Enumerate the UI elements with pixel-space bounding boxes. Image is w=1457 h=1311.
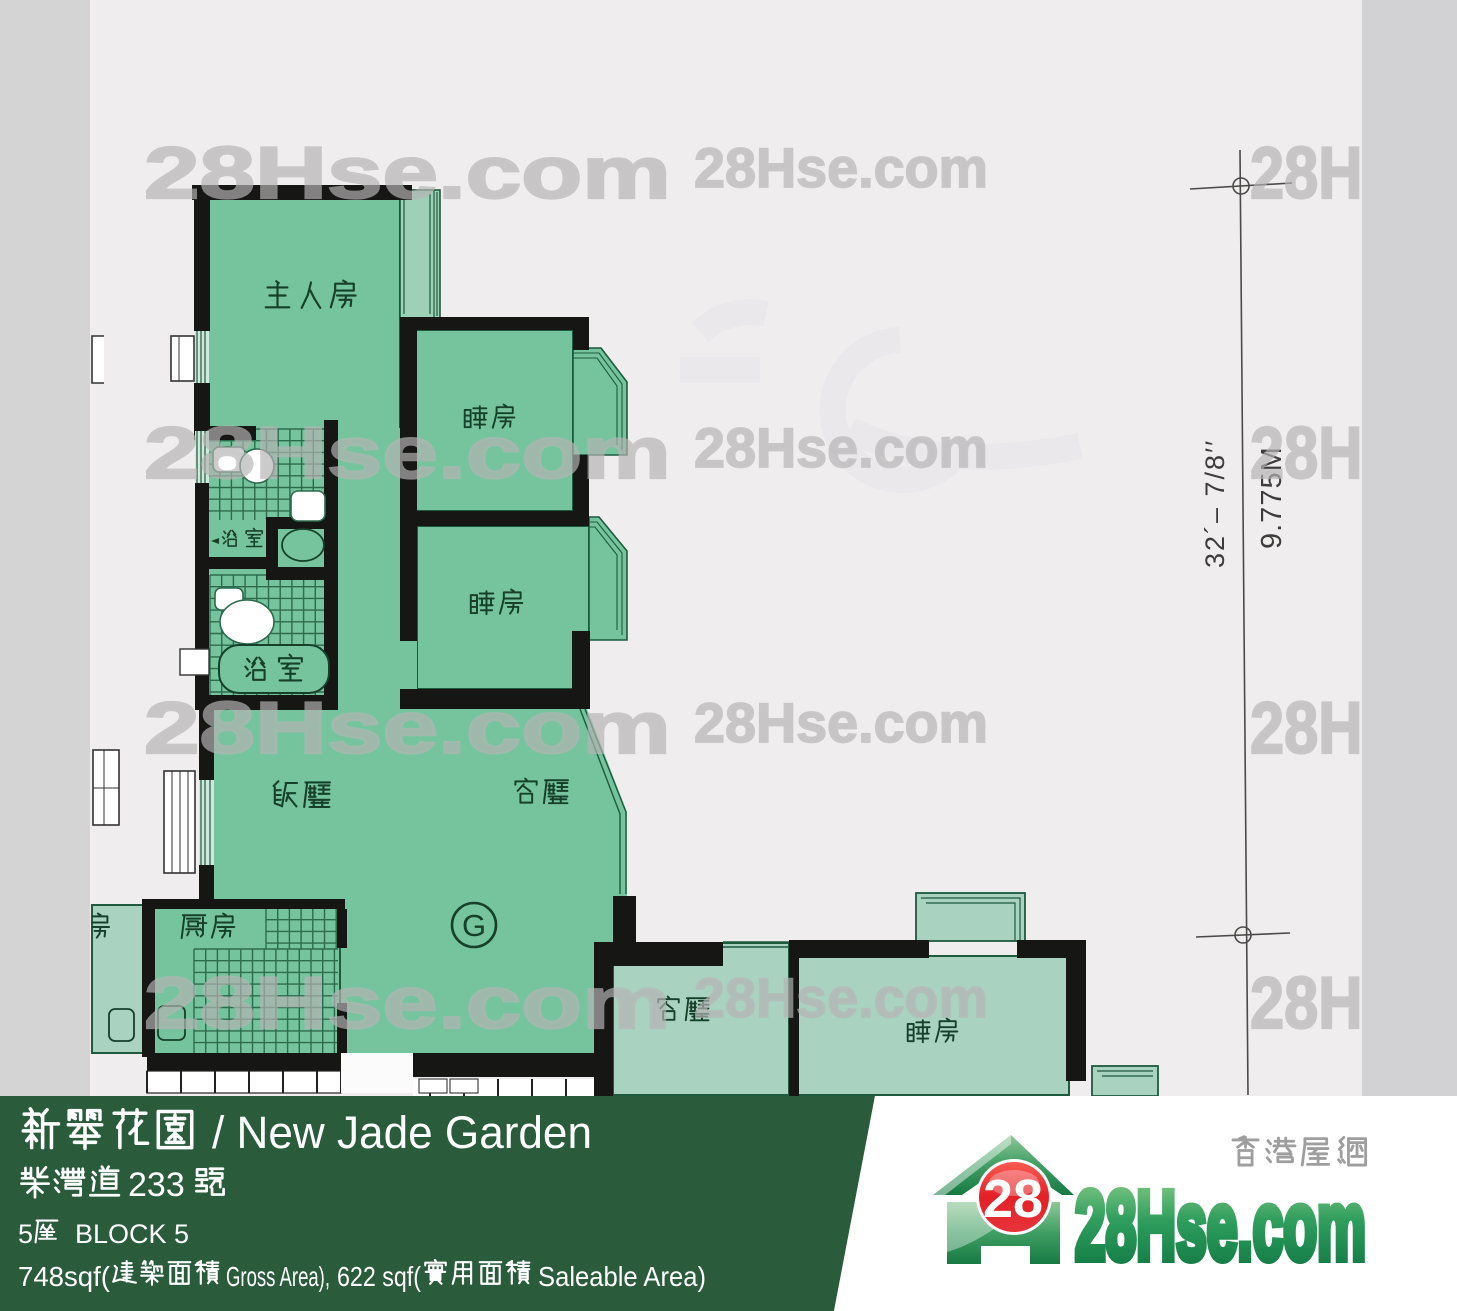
- svg-text:28Hse.com: 28Hse.com: [1075, 1171, 1366, 1280]
- svg-text:28Hse.com: 28Hse.com: [144, 132, 671, 214]
- svg-text:32´– 7/8′′: 32´– 7/8′′: [1200, 439, 1230, 568]
- svg-text:28Hse.com: 28Hse.com: [694, 967, 988, 1029]
- svg-text:G: G: [462, 908, 486, 943]
- svg-text:28Hse.com: 28Hse.com: [694, 417, 988, 479]
- svg-text:622 sqf(: 622 sqf(: [337, 1261, 422, 1292]
- svg-text:28: 28: [983, 1169, 1043, 1229]
- svg-text:28Hse.com: 28Hse.com: [694, 137, 988, 199]
- svg-text:Gross Area),: Gross Area),: [226, 1261, 330, 1292]
- svg-text:28Hse.com: 28Hse.com: [144, 962, 671, 1044]
- svg-text:/ New Jade Garden: / New Jade Garden: [212, 1107, 592, 1158]
- svg-text:748sqf(: 748sqf(: [18, 1261, 111, 1292]
- svg-text:Saleable Area): Saleable Area): [538, 1261, 706, 1292]
- svg-text:BLOCK 5: BLOCK 5: [75, 1219, 189, 1249]
- svg-text:5: 5: [18, 1219, 33, 1249]
- svg-text:28Hse.com: 28Hse.com: [144, 412, 671, 494]
- svg-text:233: 233: [128, 1166, 185, 1204]
- svg-text:28Hse.com: 28Hse.com: [144, 687, 671, 769]
- svg-text:28Hse.com: 28Hse.com: [694, 692, 988, 754]
